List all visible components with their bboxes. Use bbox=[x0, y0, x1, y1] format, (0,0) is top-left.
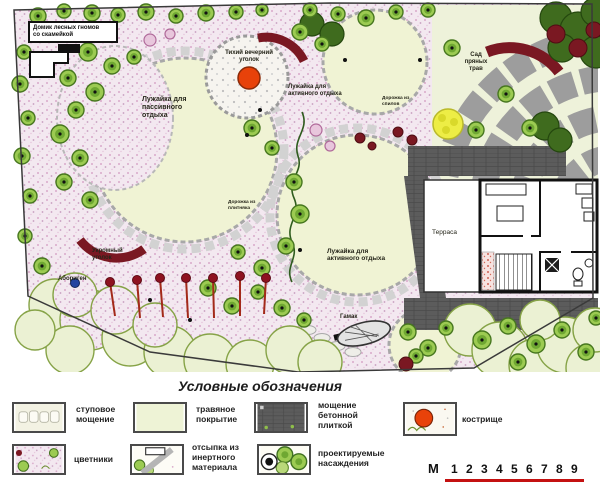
tree-center bbox=[302, 318, 305, 321]
tree-center bbox=[256, 290, 259, 293]
tree-center bbox=[270, 146, 273, 149]
tree-icon bbox=[82, 192, 98, 208]
legend-label-firepit: кострище bbox=[462, 414, 502, 424]
tree-center bbox=[594, 316, 597, 319]
tree-center bbox=[174, 14, 177, 17]
maroon-shrub-icon bbox=[586, 22, 600, 38]
tree-icon bbox=[274, 300, 290, 316]
tree-center bbox=[36, 14, 39, 17]
maroon-shrub-icon bbox=[407, 135, 417, 145]
tree-center bbox=[426, 346, 429, 349]
tree-center bbox=[78, 156, 81, 159]
tree-center bbox=[236, 250, 239, 253]
legend-label-concrete-tile: мощение бетонной плиткой bbox=[318, 400, 358, 431]
tree-icon bbox=[292, 24, 308, 40]
maroon-shrub-icon bbox=[355, 133, 365, 143]
tree-icon bbox=[473, 331, 491, 349]
shrub-icon bbox=[15, 310, 55, 350]
tree-icon bbox=[21, 111, 35, 125]
tree-center bbox=[516, 360, 519, 363]
flower-stem bbox=[213, 278, 214, 318]
flower-head bbox=[182, 274, 191, 283]
legend-label-grass-cover: травяное покрытие bbox=[196, 404, 237, 424]
tree-center bbox=[116, 13, 119, 16]
pink-flower-icon bbox=[325, 141, 335, 151]
garden-plan-page: Домик лесных гномов со скамейкой Тихий в… bbox=[0, 0, 600, 492]
scale-tick: 9 bbox=[567, 462, 582, 476]
tree-icon bbox=[104, 58, 120, 74]
scale-tick: 5 bbox=[507, 462, 522, 476]
tree-center bbox=[110, 64, 113, 67]
tree-icon bbox=[389, 5, 403, 19]
tree-center bbox=[506, 324, 509, 327]
tree-icon bbox=[251, 285, 265, 299]
tree-center bbox=[28, 194, 31, 197]
tree-icon bbox=[500, 318, 516, 334]
tree-icon bbox=[358, 10, 374, 26]
tree-center bbox=[86, 50, 89, 53]
tree-icon bbox=[231, 245, 245, 259]
tree-center bbox=[230, 304, 233, 307]
legend-label-flowerbeds: цветники bbox=[74, 454, 113, 464]
tree-center bbox=[206, 286, 209, 289]
tree-icon bbox=[169, 9, 183, 23]
tree-icon bbox=[421, 3, 435, 17]
gnome-house-label: Домик лесных гномов со скамейкой bbox=[28, 21, 118, 43]
scale-bar: М123456789 bbox=[428, 460, 594, 482]
tree-icon bbox=[444, 40, 460, 56]
small-bush-dot bbox=[258, 108, 262, 112]
flower-head bbox=[209, 274, 218, 283]
small-bush-dot bbox=[148, 298, 152, 302]
tree-center bbox=[88, 198, 91, 201]
stairs bbox=[496, 254, 532, 290]
kitchen-counter bbox=[576, 184, 592, 194]
tree-icon bbox=[34, 258, 50, 274]
swatch-firepit bbox=[403, 402, 457, 436]
tree-center bbox=[474, 128, 477, 131]
tree-icon bbox=[229, 5, 243, 19]
legend-label-stone-paving: ступовое мощение bbox=[76, 404, 115, 424]
scale-tick: 2 bbox=[462, 462, 477, 476]
scale-prefix: М bbox=[428, 461, 439, 476]
tree-center bbox=[132, 55, 135, 58]
tree-center bbox=[444, 326, 447, 329]
swatch-concrete-tile bbox=[254, 402, 308, 433]
table bbox=[497, 206, 523, 221]
flower-head bbox=[236, 272, 245, 281]
tree-center bbox=[364, 16, 367, 19]
dark-shrub-icon bbox=[548, 128, 572, 152]
tree-icon bbox=[256, 4, 268, 16]
tree-center bbox=[284, 244, 287, 247]
toilet bbox=[573, 268, 583, 280]
tree-icon bbox=[57, 4, 71, 18]
fire-pit-icon bbox=[238, 67, 260, 89]
scale-tick: 4 bbox=[492, 462, 507, 476]
tree-icon bbox=[278, 238, 294, 254]
tree-center bbox=[308, 8, 311, 11]
legend-title: Условные обозначения bbox=[130, 378, 390, 394]
tree-center bbox=[528, 126, 531, 129]
tree-icon bbox=[297, 313, 311, 327]
scale-tick: 1 bbox=[447, 462, 462, 476]
tree-center bbox=[58, 132, 61, 135]
tree-icon bbox=[198, 5, 214, 21]
flower-head bbox=[262, 274, 271, 283]
tree-icon bbox=[56, 174, 72, 190]
flower-spot bbox=[482, 252, 494, 290]
tree-icon bbox=[578, 344, 594, 360]
flower-head bbox=[133, 276, 142, 285]
pink-flower-icon bbox=[144, 34, 156, 46]
tree-icon bbox=[303, 3, 317, 17]
tree-icon bbox=[60, 70, 76, 86]
swatch-stone-paving bbox=[12, 402, 66, 433]
maroon-shrub-icon bbox=[547, 25, 565, 43]
scale-ticks: 123456789 bbox=[445, 460, 584, 482]
tree-icon bbox=[554, 322, 570, 338]
yellow-flower bbox=[450, 118, 458, 126]
small-bush-dot bbox=[418, 58, 422, 62]
tree-icon bbox=[527, 335, 545, 353]
tree-center bbox=[280, 306, 283, 309]
maroon-shrub-icon bbox=[569, 39, 587, 57]
tree-icon bbox=[68, 102, 84, 118]
tree-center bbox=[144, 10, 147, 13]
small-bush-dot bbox=[343, 58, 347, 62]
tree-center bbox=[298, 30, 301, 33]
tree-icon bbox=[86, 83, 104, 101]
house-floorplan bbox=[424, 180, 597, 292]
tree-icon bbox=[331, 7, 345, 21]
tree-center bbox=[426, 8, 429, 11]
tree-icon bbox=[51, 125, 69, 143]
tree-center bbox=[18, 82, 21, 85]
landscape-plan-drawing bbox=[0, 0, 600, 380]
yellow-flower bbox=[442, 126, 450, 134]
small-bush-dot bbox=[298, 248, 302, 252]
tree-center bbox=[66, 76, 69, 79]
tree-center bbox=[584, 350, 587, 353]
tree-icon bbox=[17, 45, 31, 59]
scale-tick: 6 bbox=[522, 462, 537, 476]
legend-label-plantings: проектируемые насаждения bbox=[318, 448, 384, 468]
tree-icon bbox=[111, 8, 125, 22]
tree-center bbox=[320, 42, 323, 45]
small-bush-dot bbox=[188, 318, 192, 322]
tree-center bbox=[394, 10, 397, 13]
tree-icon bbox=[400, 324, 416, 340]
scale-tick: 3 bbox=[477, 462, 492, 476]
shrub-icon bbox=[520, 300, 560, 340]
swatch-flowerbeds bbox=[12, 444, 66, 475]
pink-flower-icon bbox=[165, 29, 175, 39]
tree-icon bbox=[72, 150, 88, 166]
yellow-flowers-icon bbox=[433, 109, 463, 139]
tree-center bbox=[534, 342, 537, 345]
tree-icon bbox=[510, 354, 526, 370]
tree-center bbox=[93, 90, 96, 93]
sink bbox=[585, 259, 593, 267]
tree-icon bbox=[468, 122, 484, 138]
swatch-plantings bbox=[257, 444, 311, 475]
legend-label-inert-fill: отсыпка из инертного материала bbox=[192, 442, 239, 473]
tree-icon bbox=[286, 174, 302, 190]
tree-center bbox=[40, 264, 43, 267]
scale-tick: 8 bbox=[552, 462, 567, 476]
sofa bbox=[486, 184, 526, 195]
tree-center bbox=[74, 108, 77, 111]
tree-center bbox=[62, 180, 65, 183]
scale-tick: 7 bbox=[537, 462, 552, 476]
small-bush-dot bbox=[245, 133, 249, 137]
pond-icon bbox=[71, 279, 80, 288]
tree-center bbox=[260, 8, 263, 11]
tree-icon bbox=[315, 37, 329, 51]
tree-center bbox=[450, 46, 453, 49]
tree-icon bbox=[291, 205, 309, 223]
tree-icon bbox=[224, 298, 240, 314]
tree-icon bbox=[439, 321, 453, 335]
tree-icon bbox=[79, 43, 97, 61]
tree-icon bbox=[265, 141, 279, 155]
tree-icon bbox=[498, 86, 514, 102]
tree-center bbox=[298, 212, 301, 215]
tree-center bbox=[260, 266, 263, 269]
flower-head bbox=[156, 274, 165, 283]
legend: Условные обозначения ступовое мощение тр… bbox=[0, 372, 600, 492]
tree-icon bbox=[12, 76, 28, 92]
tree-center bbox=[90, 11, 93, 14]
tree-center bbox=[560, 328, 563, 331]
tree-icon bbox=[23, 189, 37, 203]
swatch-grass-cover bbox=[133, 402, 187, 433]
tree-center bbox=[480, 338, 483, 341]
maroon-shrub-icon bbox=[393, 127, 403, 137]
tree-center bbox=[22, 50, 25, 53]
swatch-inert-fill bbox=[130, 444, 184, 475]
flower-head bbox=[106, 278, 115, 287]
tree-icon bbox=[522, 120, 538, 136]
tree-center bbox=[292, 180, 295, 183]
tree-center bbox=[504, 92, 507, 95]
tree-center bbox=[336, 12, 339, 15]
tree-center bbox=[414, 354, 417, 357]
tree-center bbox=[406, 330, 409, 333]
pink-flower-icon bbox=[310, 124, 322, 136]
tree-icon bbox=[127, 50, 141, 64]
yellow-flower bbox=[438, 114, 446, 122]
tree-center bbox=[250, 126, 253, 129]
terrace bbox=[424, 180, 480, 292]
tree-center bbox=[62, 9, 65, 12]
tree-center bbox=[26, 116, 29, 119]
tree-center bbox=[234, 10, 237, 13]
tree-icon bbox=[589, 311, 600, 325]
tree-center bbox=[204, 11, 207, 14]
maroon-shrub-icon bbox=[368, 142, 376, 150]
